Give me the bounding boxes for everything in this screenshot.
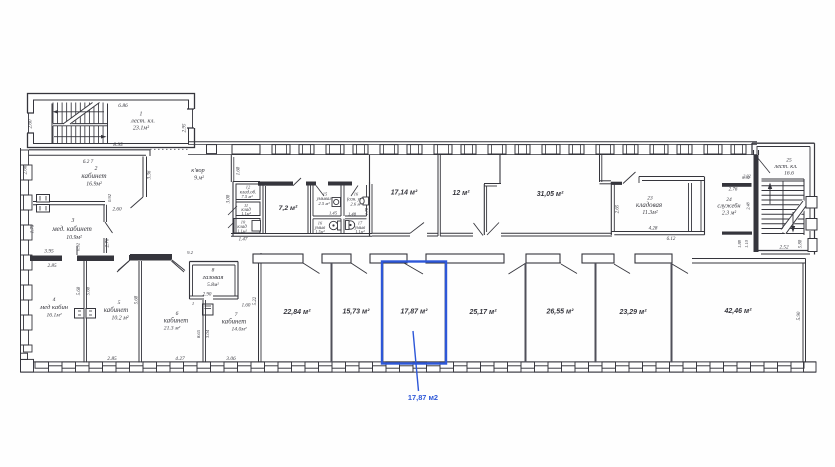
svg-text:42,46 м²: 42,46 м² [724, 308, 753, 315]
svg-text:16.6: 16.6 [784, 171, 794, 177]
svg-text:3.00: 3.00 [227, 194, 232, 203]
svg-text:2.48: 2.48 [746, 201, 751, 209]
svg-text:1.48: 1.48 [348, 212, 357, 217]
svg-text:1.47: 1.47 [239, 238, 248, 243]
svg-text:6.2 7: 6.2 7 [83, 159, 94, 165]
svg-text:служебн: служебн [717, 203, 740, 210]
svg-text:22,84 м²: 22,84 м² [283, 309, 312, 316]
svg-text:2.66: 2.66 [24, 165, 29, 174]
svg-text:9.2: 9.2 [187, 250, 193, 255]
svg-text:31,05 м²: 31,05 м² [537, 191, 564, 198]
svg-text:1.1м²: 1.1м² [237, 228, 247, 233]
svg-text:кладовая: кладовая [636, 202, 662, 209]
svg-text:14.0м²: 14.0м² [231, 327, 246, 333]
svg-text:1.60: 1.60 [242, 304, 251, 309]
svg-text:11: 11 [244, 203, 248, 208]
svg-text:2.60: 2.60 [28, 119, 34, 128]
svg-text:2.76: 2.76 [729, 188, 738, 193]
svg-text:5.80: 5.80 [799, 239, 804, 248]
svg-text:8.95: 8.95 [113, 142, 123, 148]
svg-text:0.92: 0.92 [107, 193, 112, 202]
svg-text:8.65: 8.65 [196, 329, 201, 338]
svg-text:23: 23 [647, 196, 653, 202]
svg-text:17,87 м²: 17,87 м² [401, 309, 429, 316]
svg-text:7: 7 [235, 312, 238, 318]
svg-text:3.36: 3.36 [148, 170, 153, 179]
svg-text:к'вор: к'вор [191, 167, 204, 174]
svg-text:9.м²: 9.м² [194, 176, 204, 182]
svg-text:кабинет: кабинет [222, 319, 247, 326]
svg-text:1.60: 1.60 [237, 166, 242, 175]
svg-text:5.68: 5.68 [77, 286, 82, 295]
svg-text:21.3 м²: 21.3 м² [164, 326, 181, 332]
svg-text:23.1м²: 23.1м² [133, 126, 149, 132]
svg-text:1.45: 1.45 [329, 210, 338, 215]
svg-text:10.2 м²: 10.2 м² [111, 316, 128, 322]
svg-text:кабинет: кабинет [164, 318, 189, 325]
svg-text:3.04: 3.04 [205, 329, 210, 338]
svg-text:3.06: 3.06 [225, 356, 236, 362]
svg-text:3: 3 [71, 218, 75, 224]
svg-text:1.88: 1.88 [737, 239, 742, 247]
svg-text:4: 4 [53, 297, 56, 303]
svg-text:6: 6 [176, 311, 179, 317]
svg-text:4.28: 4.28 [649, 227, 658, 232]
svg-text:2.70: 2.70 [106, 238, 111, 247]
svg-text:мед кабин: мед кабин [39, 304, 69, 311]
svg-text:1: 1 [192, 301, 194, 306]
svg-text:5.68: 5.68 [87, 286, 92, 295]
svg-text:мед. кабинет: мед. кабинет [51, 225, 92, 233]
svg-text:1.1м²: 1.1м² [241, 211, 251, 216]
svg-text:7.5 м²: 7.5 м² [241, 194, 253, 199]
svg-text:16.1м²: 16.1м² [46, 313, 61, 319]
svg-text:2.90: 2.90 [203, 293, 212, 298]
svg-text:лест. кл.: лест. кл. [130, 118, 155, 125]
svg-text:5.68: 5.68 [135, 295, 140, 304]
svg-text:5: 5 [118, 300, 121, 306]
svg-text:17,14 м²: 17,14 м² [391, 190, 418, 197]
svg-text:5.90: 5.90 [797, 311, 802, 320]
svg-text:4.27: 4.27 [175, 356, 185, 362]
svg-text:2.52: 2.52 [779, 245, 788, 251]
svg-text:кабинет: кабинет [104, 307, 129, 314]
svg-text:23,29 м²: 23,29 м² [619, 309, 648, 316]
svg-text:2.5 м²: 2.5 м² [318, 201, 330, 206]
svg-text:2.60: 2.60 [112, 207, 121, 213]
svg-text:1.78: 1.78 [364, 207, 369, 215]
svg-text:12 м²: 12 м² [453, 190, 471, 197]
svg-text:6.86: 6.86 [118, 103, 128, 109]
svg-text:17,87 м2: 17,87 м2 [408, 393, 438, 402]
svg-text:0.92: 0.92 [76, 242, 81, 251]
svg-text:2.3 м²: 2.3 м² [722, 211, 736, 217]
svg-text:2.85: 2.85 [107, 356, 117, 362]
svg-text:15,73 м²: 15,73 м² [343, 309, 371, 316]
svg-text:3.95: 3.95 [43, 249, 54, 255]
svg-text:6.12: 6.12 [667, 237, 676, 242]
svg-text:газовая: газовая [203, 274, 224, 281]
svg-text:25,17 м²: 25,17 м² [469, 309, 498, 316]
svg-text:2.92: 2.92 [743, 174, 751, 179]
svg-text:11.3м²: 11.3м² [642, 210, 657, 216]
svg-text:16.9м²: 16.9м² [86, 182, 102, 188]
svg-text:кабинет: кабинет [81, 172, 106, 180]
svg-text:2.65: 2.65 [616, 204, 621, 213]
svg-text:5.22: 5.22 [253, 296, 258, 305]
svg-text:2.95: 2.95 [182, 123, 188, 132]
svg-text:1.75: 1.75 [31, 224, 36, 233]
svg-text:10.9м²: 10.9м² [66, 235, 82, 241]
svg-text:1.10: 1.10 [744, 239, 749, 247]
svg-text:лест. кл.: лест. кл. [773, 163, 797, 170]
svg-text:7,2 м²: 7,2 м² [279, 205, 298, 212]
svg-text:26,55 м²: 26,55 м² [546, 309, 575, 316]
svg-text:5.8м²: 5.8м² [207, 282, 219, 288]
svg-text:2.85: 2.85 [47, 263, 56, 269]
svg-text:8: 8 [212, 268, 215, 274]
